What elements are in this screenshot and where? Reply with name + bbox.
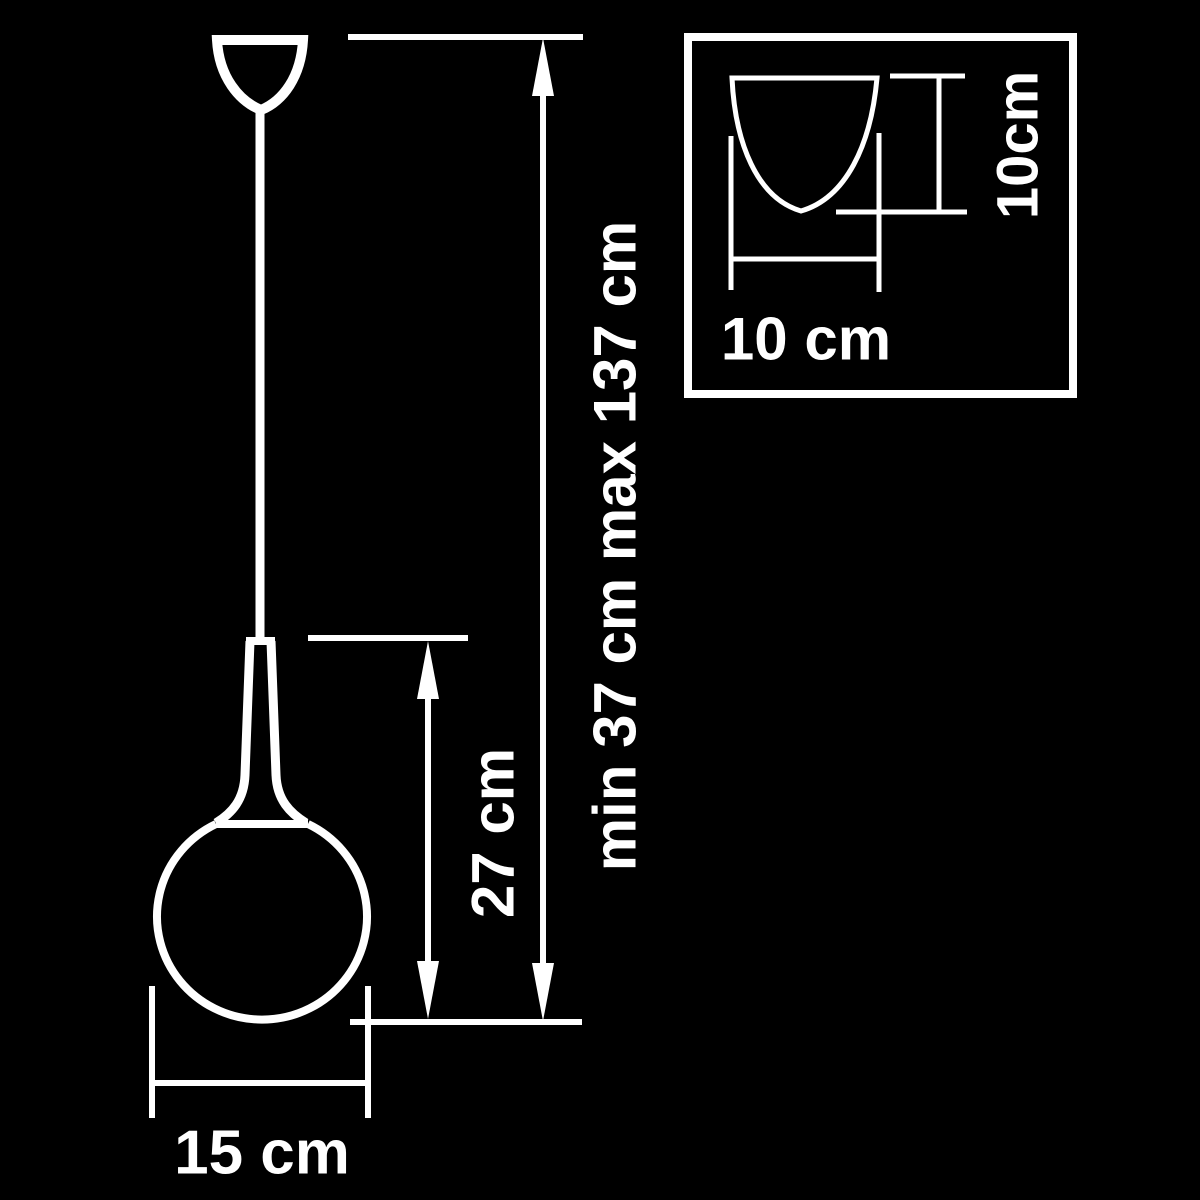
- diagram-canvas: min 37 cm max 137 cm 27 cm 15 cm 10c: [0, 0, 1200, 1200]
- overall-height-label: min 37 cm max 137 cm: [582, 221, 649, 871]
- lamp-body-height-label: 27 cm: [460, 748, 527, 918]
- arrow-up-icon: [417, 641, 439, 699]
- lamp-neck-left: [216, 641, 250, 823]
- inset-shade-profile: [732, 78, 877, 211]
- glass-globe: [157, 824, 367, 1020]
- arrow-down-icon: [417, 961, 439, 1019]
- arrow-down-icon: [532, 963, 554, 1021]
- globe-diameter-label: 15 cm: [174, 1119, 350, 1188]
- dimension-diagram: min 37 cm max 137 cm 27 cm 15 cm 10c: [0, 0, 1200, 1200]
- pendant-lamp-drawing: [157, 40, 367, 1020]
- inset-detail-box: 10cm 10 cm: [688, 37, 1073, 394]
- inset-shade-width-label: 10 cm: [721, 306, 891, 373]
- lamp-neck-right: [271, 641, 306, 823]
- lamp-body-height-dimension: 27 cm: [308, 638, 527, 1019]
- inset-shade-height-label: 10cm: [986, 71, 1051, 219]
- ceiling-canopy: [217, 40, 303, 110]
- arrow-up-icon: [532, 38, 554, 96]
